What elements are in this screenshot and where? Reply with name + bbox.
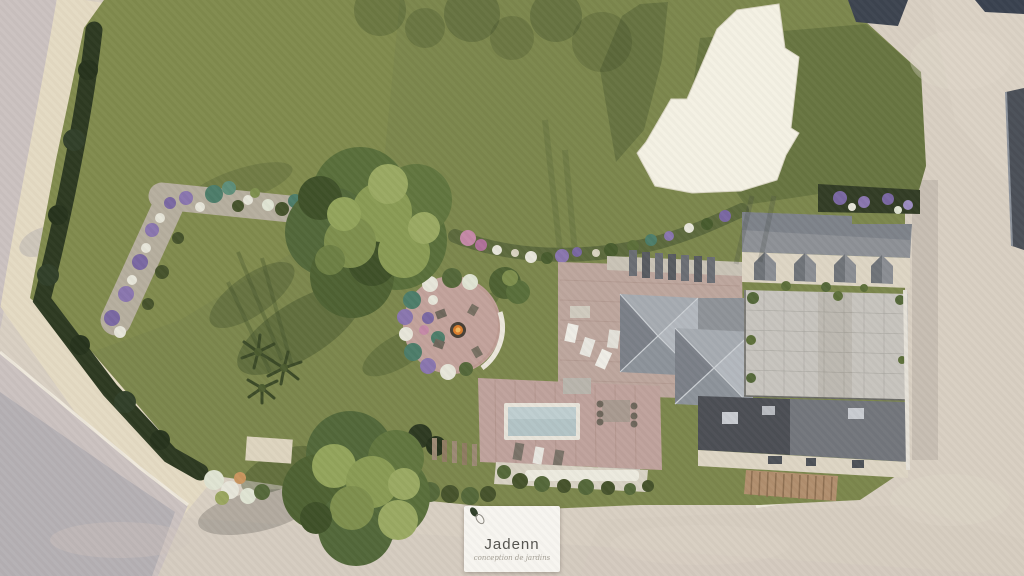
paved-courtyard: [744, 290, 908, 400]
brand-name: Jadenn: [484, 537, 539, 552]
skylight: [722, 412, 738, 424]
logo-card: Jadenn conception de jardins: [464, 506, 560, 572]
white-flower-shrub: [204, 470, 224, 490]
pool-house-step: [563, 378, 591, 394]
garden-plan-svg: [0, 0, 1024, 576]
aerial-render: Jadenn conception de jardins: [0, 0, 1024, 576]
pool-terrace: [478, 378, 662, 495]
wall-shadow-on-road: [912, 180, 938, 460]
brand-tagline: conception de jardins: [474, 555, 551, 562]
terrace-table: [570, 306, 590, 318]
turret-roof-2: [675, 328, 753, 408]
garden-wall-cream: [245, 436, 293, 463]
